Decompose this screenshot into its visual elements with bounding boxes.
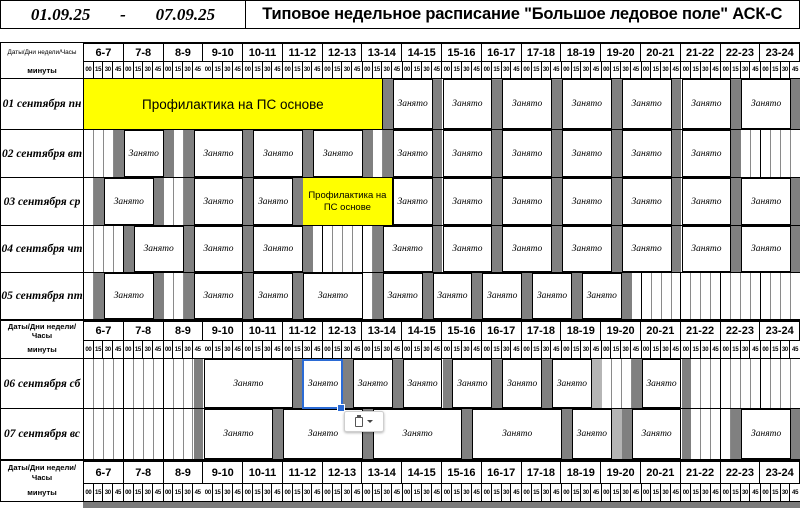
minute-header-cell: 30	[542, 484, 552, 501]
free-slot[interactable]	[164, 359, 174, 408]
busy-block[interactable]: Занято	[253, 273, 293, 319]
paste-options-caret-icon[interactable]	[367, 420, 373, 423]
minute-header-cell: 00	[283, 62, 293, 78]
busy-block[interactable]: Занято	[572, 409, 612, 459]
busy-block[interactable]: Занято	[124, 130, 164, 177]
day-row: 04 сентября чтЗанятоЗанятоЗанятоЗанятоЗа…	[0, 226, 800, 273]
busy-block[interactable]: Занято	[134, 226, 184, 272]
break-cell[interactable]	[303, 226, 313, 272]
free-slot[interactable]	[134, 409, 144, 459]
break-cell[interactable]	[164, 130, 174, 177]
break-cell[interactable]	[731, 226, 741, 272]
break-cell[interactable]	[492, 79, 502, 129]
free-slot[interactable]	[164, 273, 174, 319]
break-cell[interactable]	[552, 178, 562, 225]
free-slot[interactable]	[84, 226, 94, 272]
free-slot[interactable]	[751, 359, 761, 408]
break-cell[interactable]	[731, 409, 741, 459]
maintenance-block[interactable]: Профилактика на ПС основе	[303, 178, 393, 225]
break-cell[interactable]	[243, 226, 253, 272]
break-cell[interactable]	[791, 226, 800, 272]
busy-block[interactable]: Занято	[393, 130, 433, 177]
break-cell[interactable]	[94, 178, 104, 225]
busy-block[interactable]: Занято	[502, 178, 552, 225]
free-cells[interactable]	[164, 273, 184, 319]
busy-block[interactable]: Занято	[622, 130, 672, 177]
break-cell[interactable]	[184, 178, 194, 225]
minute-header-cell: 15	[532, 341, 542, 358]
break-cell[interactable]	[731, 79, 741, 129]
break-cell[interactable]	[791, 409, 800, 459]
busy-block[interactable]: Занято	[682, 79, 732, 129]
break-cell[interactable]	[433, 79, 443, 129]
free-cells[interactable]	[84, 178, 94, 225]
busy-block[interactable]: Занято	[741, 226, 791, 272]
minute-header-cell: 30	[103, 484, 113, 501]
free-cells[interactable]	[174, 130, 184, 177]
free-slot[interactable]	[94, 130, 104, 177]
break-cell[interactable]	[492, 359, 502, 408]
break-cell[interactable]	[433, 130, 443, 177]
break-cell[interactable]	[472, 273, 482, 319]
break-cell[interactable]	[184, 273, 194, 319]
busy-block[interactable]: Занято	[383, 226, 433, 272]
hour-header-cell: 6-7	[84, 43, 124, 62]
busy-block[interactable]: Занято	[393, 178, 433, 225]
minute-header-cell: 15	[691, 484, 701, 501]
day-label: 04 сентября чт	[1, 226, 84, 272]
free-slot[interactable]	[114, 226, 124, 272]
busy-block[interactable]: Занято	[741, 409, 791, 459]
minute-header-cell: 30	[422, 62, 432, 78]
break-cell[interactable]	[184, 226, 194, 272]
busy-block[interactable]: Занято	[194, 130, 244, 177]
hour-header-cell: 21-22	[681, 461, 721, 484]
busy-block[interactable]: Занято	[204, 409, 274, 459]
day-grid: ЗанятоЗанятоЗанятоЗанятоЗанятоЗанятоЗаня…	[84, 226, 800, 272]
busy-block[interactable]: Занято	[562, 130, 612, 177]
break-cell[interactable]	[731, 130, 741, 177]
minute-header-cell: 45	[392, 341, 402, 358]
selection-outline[interactable]	[302, 359, 343, 409]
minute-header-cell: 45	[392, 62, 402, 78]
busy-block[interactable]: Занято	[582, 273, 622, 319]
free-cells[interactable]	[84, 273, 94, 319]
busy-block[interactable]: Занято	[502, 79, 552, 129]
minute-group: 00153045	[681, 341, 721, 358]
free-slot[interactable]	[612, 359, 622, 408]
break-cell[interactable]	[562, 409, 572, 459]
hour-header-cell: 7-8	[124, 461, 164, 484]
free-slot[interactable]	[104, 409, 114, 459]
free-cells[interactable]	[313, 226, 373, 272]
break-cell[interactable]	[462, 409, 472, 459]
free-slot[interactable]	[343, 226, 353, 272]
minute-header-cell: 45	[472, 341, 482, 358]
break-cell[interactable]	[492, 178, 502, 225]
minute-header-cell: 45	[312, 484, 322, 501]
fill-handle[interactable]	[337, 404, 345, 412]
busy-block[interactable]: Занято	[562, 226, 612, 272]
free-slot[interactable]	[691, 359, 701, 408]
break-cell[interactable]	[114, 130, 124, 177]
free-slot[interactable]	[761, 273, 771, 319]
free-slot[interactable]	[771, 359, 781, 408]
busy-block[interactable]: Занято	[373, 409, 463, 459]
free-slot[interactable]	[731, 273, 741, 319]
break-cell[interactable]	[492, 130, 502, 177]
break-cell[interactable]	[672, 178, 682, 225]
break-cell[interactable]	[373, 273, 383, 319]
break-cell[interactable]	[622, 273, 632, 319]
busy-block[interactable]: Занято	[642, 359, 682, 408]
minute-group: 00153045	[403, 484, 443, 501]
maintenance-block[interactable]: Профилактика на ПС основе	[84, 79, 383, 129]
break-cell[interactable]	[612, 79, 622, 129]
minute-header-cell: 45	[551, 62, 561, 78]
hour-header-cell: 12-13	[323, 43, 363, 62]
free-slot[interactable]	[174, 273, 184, 319]
break-cell[interactable]	[194, 409, 204, 459]
free-cells[interactable]	[691, 409, 731, 459]
break-cell[interactable]	[433, 178, 443, 225]
busy-block[interactable]: Занято	[104, 178, 154, 225]
minute-header-cell: 00	[203, 484, 213, 501]
free-slot[interactable]	[84, 130, 94, 177]
free-slot[interactable]	[94, 409, 104, 459]
break-cell[interactable]	[293, 178, 303, 225]
break-cell[interactable]	[622, 409, 632, 459]
maintenance-label: Профилактика на ПС основе	[303, 190, 392, 214]
free-slot[interactable]	[373, 130, 383, 177]
busy-block[interactable]: Занято	[194, 273, 244, 319]
busy-block[interactable]: Занято	[443, 130, 493, 177]
break-cell[interactable]	[363, 130, 373, 177]
free-slot[interactable]	[174, 130, 184, 177]
busy-block[interactable]: Занято	[682, 226, 732, 272]
break-cell[interactable]	[572, 273, 582, 319]
busy-block[interactable]: Занято	[443, 226, 493, 272]
free-slot[interactable]	[701, 359, 711, 408]
break-cell[interactable]	[791, 178, 800, 225]
free-slot[interactable]	[84, 178, 94, 225]
free-cells[interactable]	[84, 409, 194, 459]
free-slot[interactable]	[652, 273, 662, 319]
free-slot[interactable]	[761, 359, 771, 408]
free-slot[interactable]	[134, 359, 144, 408]
free-cells[interactable]	[84, 359, 194, 408]
free-slot[interactable]	[184, 409, 194, 459]
free-cells[interactable]	[602, 359, 632, 408]
break-cell[interactable]	[243, 273, 253, 319]
break-cell[interactable]	[552, 79, 562, 129]
busy-block[interactable]: Занято	[443, 178, 493, 225]
break-cell[interactable]	[612, 178, 622, 225]
busy-block[interactable]: Занято	[383, 273, 423, 319]
break-cell-light[interactable]	[592, 359, 602, 408]
free-slot[interactable]	[711, 409, 721, 459]
free-slot[interactable]	[94, 359, 104, 408]
busy-block[interactable]: Занято	[403, 359, 443, 408]
free-slot[interactable]	[104, 130, 114, 177]
minute-header-cell: 00	[164, 62, 174, 78]
free-slot[interactable]	[104, 359, 114, 408]
free-slot[interactable]	[642, 273, 652, 319]
free-slot[interactable]	[781, 273, 791, 319]
minute-group: 00153045	[323, 484, 363, 501]
free-slot[interactable]	[672, 273, 682, 319]
break-cell[interactable]	[383, 130, 393, 177]
free-slot[interactable]	[313, 226, 323, 272]
day-row: 01 сентября пнПрофилактика на ПС основеЗ…	[0, 79, 800, 130]
free-slot[interactable]	[741, 273, 751, 319]
free-slot[interactable]	[104, 226, 114, 272]
minute-group: 00153045	[442, 62, 482, 78]
minute-header-cell: 45	[113, 484, 123, 501]
free-slot[interactable]	[323, 226, 333, 272]
break-cell[interactable]	[542, 359, 552, 408]
free-slot[interactable]	[751, 130, 761, 177]
busy-block[interactable]: Занято	[532, 273, 572, 319]
busy-block[interactable]: Занято	[393, 79, 433, 129]
busy-block[interactable]: Занято	[452, 359, 492, 408]
break-cell[interactable]	[731, 178, 741, 225]
break-cell[interactable]	[632, 359, 642, 408]
break-cell[interactable]	[383, 79, 393, 129]
free-cells[interactable]	[373, 130, 383, 177]
free-slot[interactable]	[174, 359, 184, 408]
busy-block[interactable]: Занято	[253, 130, 303, 177]
free-cells[interactable]	[84, 226, 124, 272]
break-cell[interactable]	[243, 178, 253, 225]
hour-header-cell: 19-20	[601, 321, 641, 341]
busy-block[interactable]: Занято	[632, 409, 682, 459]
free-slot[interactable]	[791, 130, 800, 177]
busy-block[interactable]: Занято	[682, 178, 732, 225]
minute-group: 00153045	[602, 484, 642, 501]
free-slot[interactable]	[124, 359, 134, 408]
free-slot[interactable]	[333, 226, 343, 272]
free-slot[interactable]	[353, 226, 363, 272]
hour-header-cell: 9-10	[203, 321, 243, 341]
break-cell[interactable]	[343, 359, 353, 408]
break-cell[interactable]	[373, 226, 383, 272]
minute-group: 00153045	[124, 341, 164, 358]
break-cell[interactable]	[612, 226, 622, 272]
schedule-grid: Даты/Дни недели/Часы6-77-88-99-1010-1111…	[0, 42, 800, 508]
break-cell[interactable]	[443, 359, 453, 408]
busy-block[interactable]: Занято	[472, 409, 562, 459]
busy-block[interactable]: Занято	[622, 79, 672, 129]
free-slot[interactable]	[711, 273, 721, 319]
free-slot[interactable]	[164, 409, 174, 459]
busy-block[interactable]: Занято	[482, 273, 522, 319]
busy-block[interactable]: Занято	[622, 226, 672, 272]
busy-block[interactable]: Занято	[682, 130, 732, 177]
busy-block[interactable]: Занято	[253, 178, 293, 225]
hour-header-cell: 15-16	[442, 43, 482, 62]
busy-block[interactable]: Занято	[313, 130, 363, 177]
day-label: 05 сентября пт	[1, 273, 84, 319]
break-cell[interactable]	[303, 130, 313, 177]
minute-header-cell: 45	[432, 341, 442, 358]
break-cell[interactable]	[194, 359, 204, 408]
free-slot[interactable]	[721, 409, 731, 459]
break-cell[interactable]	[124, 226, 134, 272]
free-slot[interactable]	[154, 409, 164, 459]
free-slot[interactable]	[144, 359, 154, 408]
free-slot[interactable]	[632, 273, 642, 319]
minute-header-cell: 45	[432, 62, 442, 78]
break-cell[interactable]	[293, 273, 303, 319]
busy-block[interactable]: Занято	[741, 79, 791, 129]
minute-group: 00153045	[243, 484, 283, 501]
busy-block[interactable]: Занято	[194, 178, 244, 225]
free-slot[interactable]	[662, 273, 672, 319]
busy-block[interactable]: Занято	[204, 359, 294, 408]
free-slot[interactable]	[761, 130, 771, 177]
break-cell[interactable]	[393, 359, 403, 408]
free-slot[interactable]	[84, 359, 94, 408]
free-slot[interactable]	[94, 226, 104, 272]
free-slot[interactable]	[791, 273, 800, 319]
break-cell-light[interactable]	[612, 409, 622, 459]
free-cells[interactable]	[363, 273, 373, 319]
free-slot[interactable]	[114, 359, 124, 408]
free-slot[interactable]	[701, 409, 711, 459]
free-cells[interactable]	[741, 130, 800, 177]
day-row: 02 сентября втЗанятоЗанятоЗанятоЗанятоЗа…	[0, 130, 800, 178]
busy-block[interactable]: Занято	[552, 359, 592, 408]
break-cell[interactable]	[672, 79, 682, 129]
free-slot[interactable]	[363, 226, 373, 272]
free-slot[interactable]	[701, 273, 711, 319]
break-cell[interactable]	[433, 226, 443, 272]
minute-header-cell: 30	[741, 62, 751, 78]
break-cell[interactable]	[94, 273, 104, 319]
free-slot[interactable]	[84, 273, 94, 319]
break-cell[interactable]	[154, 273, 164, 319]
free-cells[interactable]	[164, 178, 184, 225]
minute-header-cell: 30	[223, 484, 233, 501]
minute-group: 00153045	[482, 484, 522, 501]
free-slot[interactable]	[164, 178, 174, 225]
break-cell[interactable]	[552, 226, 562, 272]
free-slot[interactable]	[731, 359, 741, 408]
break-cell[interactable]	[682, 409, 692, 459]
hour-header-cell: 20-21	[641, 461, 681, 484]
busy-block[interactable]: Занято	[104, 273, 154, 319]
free-slot[interactable]	[681, 273, 691, 319]
minute-header-cell: 30	[462, 62, 472, 78]
break-cell[interactable]	[552, 130, 562, 177]
minute-header-cell: 15	[731, 484, 741, 501]
free-slot[interactable]	[84, 409, 94, 459]
free-slot[interactable]	[363, 273, 373, 319]
free-slot[interactable]	[174, 178, 184, 225]
paste-options-button[interactable]	[344, 411, 384, 432]
minute-header-cell: 00	[721, 341, 731, 358]
free-slot[interactable]	[691, 409, 701, 459]
minute-header-cell: 45	[193, 341, 203, 358]
free-cells[interactable]	[632, 273, 800, 319]
day-row: 07 сентября всЗанятоЗанятоЗанятоЗанятоЗа…	[0, 409, 800, 460]
break-cell[interactable]	[672, 226, 682, 272]
break-cell[interactable]	[184, 130, 194, 177]
free-slot[interactable]	[114, 409, 124, 459]
free-slot[interactable]	[771, 130, 781, 177]
break-cell[interactable]	[522, 273, 532, 319]
busy-block[interactable]: Занято	[502, 226, 552, 272]
busy-block[interactable]: Занято	[303, 273, 363, 319]
free-slot[interactable]	[781, 130, 791, 177]
free-slot[interactable]	[741, 359, 751, 408]
minute-header-cell: 45	[233, 341, 243, 358]
busy-block[interactable]: Занято	[562, 79, 612, 129]
hour-header-cell: 20-21	[641, 321, 681, 341]
busy-block[interactable]: Занято	[562, 178, 612, 225]
minute-header-cell: 15	[94, 484, 104, 501]
busy-block[interactable]: Занято	[622, 178, 672, 225]
break-cell[interactable]	[612, 130, 622, 177]
free-cells[interactable]	[84, 130, 114, 177]
break-cell[interactable]	[243, 130, 253, 177]
break-cell[interactable]	[273, 409, 283, 459]
free-slot[interactable]	[751, 273, 761, 319]
free-slot[interactable]	[711, 359, 721, 408]
minute-header-cell: 00	[642, 484, 652, 501]
break-cell[interactable]	[682, 359, 692, 408]
break-cell[interactable]	[492, 226, 502, 272]
free-slot[interactable]	[124, 409, 134, 459]
busy-block[interactable]: Занято	[443, 79, 493, 129]
busy-block[interactable]: Занято	[253, 226, 303, 272]
break-cell[interactable]	[423, 273, 433, 319]
free-slot[interactable]	[144, 409, 154, 459]
minute-header-cell: 00	[482, 341, 492, 358]
minute-group: 00153045	[403, 341, 443, 358]
busy-block[interactable]: Занято	[353, 359, 393, 408]
busy-block[interactable]: Занято	[502, 130, 552, 177]
break-cell[interactable]	[154, 178, 164, 225]
minute-header-cell: 45	[472, 484, 482, 501]
minutes-header-row: минуты0015304500153045001530450015304500…	[0, 62, 800, 79]
free-slot[interactable]	[721, 359, 731, 408]
busy-block[interactable]: Занято	[741, 178, 791, 225]
free-slot[interactable]	[721, 273, 731, 319]
hour-header-cell: 10-11	[243, 43, 283, 62]
free-slot[interactable]	[771, 273, 781, 319]
minute-header-cell: 30	[701, 484, 711, 501]
busy-block[interactable]: Занято	[194, 226, 244, 272]
free-slot[interactable]	[622, 359, 632, 408]
break-cell[interactable]	[791, 79, 800, 129]
free-slot[interactable]	[741, 130, 751, 177]
busy-block[interactable]: Занято	[433, 273, 473, 319]
free-slot[interactable]	[602, 359, 612, 408]
free-slot[interactable]	[781, 359, 791, 408]
free-slot[interactable]	[154, 359, 164, 408]
break-cell[interactable]	[672, 130, 682, 177]
free-slot[interactable]	[691, 273, 701, 319]
free-slot[interactable]	[791, 359, 800, 408]
free-slot[interactable]	[184, 359, 194, 408]
free-cells[interactable]	[691, 359, 800, 408]
free-slot[interactable]	[174, 409, 184, 459]
busy-block[interactable]: Занято	[502, 359, 542, 408]
minute-header-cell: 30	[223, 62, 233, 78]
minute-header-cell: 15	[134, 341, 144, 358]
